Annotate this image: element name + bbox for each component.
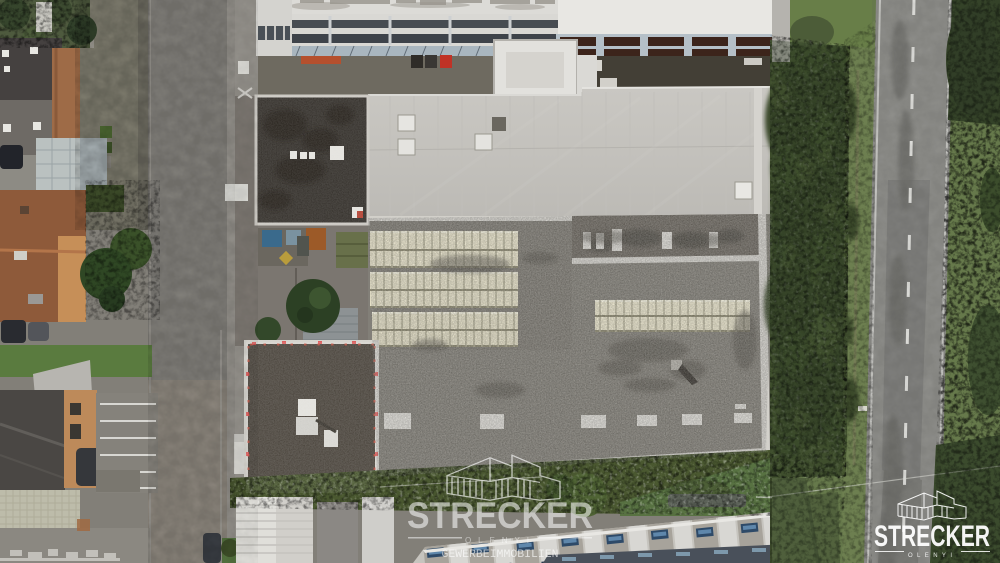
svg-text:OLENYI: OLENYI xyxy=(908,553,956,559)
svg-text:OLENYI: OLENYI xyxy=(465,536,535,545)
svg-text:STRECKER: STRECKER xyxy=(874,520,990,553)
svg-text:GEWERBEIMMOBILIEN: GEWERBEIMMOBILIEN xyxy=(442,549,559,561)
svg-text:STRECKER: STRECKER xyxy=(407,495,593,536)
